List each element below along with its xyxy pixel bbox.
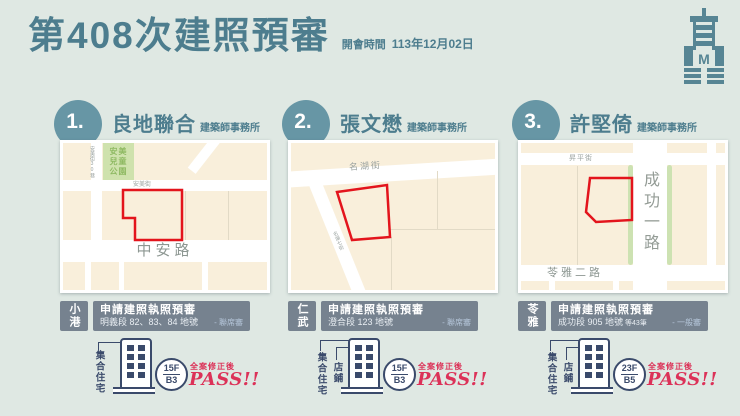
red-parcel-outline xyxy=(291,143,495,290)
district-badge: 苓雅 xyxy=(518,301,546,331)
building-window xyxy=(127,363,134,369)
building-window xyxy=(138,345,145,351)
application-bar: 申請建照執照預審 成功段 905 地號等43筆 - 一般審 xyxy=(551,301,708,331)
district-label: 小港 xyxy=(66,303,82,329)
red-parcel-outline xyxy=(521,143,725,290)
lot-number: 明義段 82、83、84 地號 xyxy=(100,318,200,328)
site-map-lingya: 昇平街 成功一路 苓雅二路 xyxy=(518,140,728,293)
application-title: 申請建照執照預審 xyxy=(328,304,471,317)
red-parcel-outline xyxy=(63,143,267,290)
building-window xyxy=(585,345,592,351)
floors-below: B3 xyxy=(166,376,178,385)
floors-above: 23F xyxy=(622,364,638,373)
application-sub: 澄合段 123 地號 - 聯席審 xyxy=(328,318,471,328)
firm-suffix: 建築師事務所 xyxy=(407,119,467,134)
pass-result: PASS!! xyxy=(417,369,488,390)
use-label: 店鋪 xyxy=(562,362,572,384)
case-panel-3: 3. 許堅倚 建築師事務所 昇平街 成功一路 苓雅二路 苓雅 申請建照 xyxy=(518,100,730,416)
floors-badge: 23F B5 xyxy=(613,358,646,391)
floors-above: 15F xyxy=(164,364,180,373)
building-window xyxy=(366,372,373,378)
building-window xyxy=(127,372,134,378)
building-window xyxy=(127,354,134,360)
meeting-date: 113年12月02日 xyxy=(392,35,474,52)
building-window xyxy=(585,363,592,369)
firm-suffix: 建築師事務所 xyxy=(637,119,697,134)
building-window xyxy=(585,354,592,360)
pass-result: PASS!! xyxy=(189,369,260,390)
lot-number: 成功段 905 地號等43筆 xyxy=(558,318,647,328)
district-badge: 仁武 xyxy=(288,301,316,331)
floors-badge: 15F B3 xyxy=(383,358,416,391)
district-label: 苓雅 xyxy=(524,303,540,329)
page-title: 第408次建照預審 xyxy=(28,14,330,58)
building-window xyxy=(355,345,362,351)
use-label: 集合住宅 xyxy=(546,352,556,396)
building-window xyxy=(596,345,603,351)
use-label: 店鋪 xyxy=(332,362,342,384)
building-window xyxy=(355,363,362,369)
review-type-tag: - 聯席審 xyxy=(214,319,243,328)
building-window xyxy=(355,372,362,378)
building-window xyxy=(355,354,362,360)
lot-number: 澄合段 123 地號 xyxy=(328,318,395,328)
application-bar: 申請建照執照預審 澄合段 123 地號 - 聯席審 xyxy=(321,301,478,331)
site-map-xiaogang: 安美 兒童 公園 安美街30巷 安美街 中安路 xyxy=(60,140,270,293)
building-base xyxy=(341,387,383,394)
site-map-renwu: 名湖街 名湖七街 xyxy=(288,140,498,293)
building-window xyxy=(596,372,603,378)
building-window xyxy=(138,363,145,369)
meeting-time-label: 開會時間 xyxy=(342,36,386,52)
use-label: 集合住宅 xyxy=(316,352,326,396)
building-window xyxy=(127,345,134,351)
application-title: 申請建照執照預審 xyxy=(100,304,243,317)
slide-canvas: 第408次建照預審 開會時間 113年12月02日 M 1. xyxy=(0,0,740,416)
meeting-info: 開會時間 113年12月02日 xyxy=(342,35,474,52)
application-bar: 申請建照執照預審 明義段 82、83、84 地號 - 聯席審 xyxy=(93,301,250,331)
building-window xyxy=(138,354,145,360)
floors-badge: 15F B3 xyxy=(155,358,188,391)
svg-text:M: M xyxy=(698,51,710,67)
floors-below: B5 xyxy=(624,376,636,385)
district-label: 仁武 xyxy=(294,303,310,329)
district-badge: 小港 xyxy=(60,301,88,331)
bracket-line xyxy=(98,342,121,350)
floors-above: 15F xyxy=(392,364,408,373)
pass-result: PASS!! xyxy=(647,369,718,390)
architect-firm: 張文懋 建築師事務所 xyxy=(340,108,467,137)
floors-below: B3 xyxy=(394,376,406,385)
review-type-tag: - 聯席審 xyxy=(442,319,471,328)
architect-firm: 許堅倚 建築師事務所 xyxy=(570,108,697,137)
application-sub: 明義段 82、83、84 地號 - 聯席審 xyxy=(100,318,243,328)
building-window xyxy=(366,345,373,351)
application-sub: 成功段 905 地號等43筆 - 一般審 xyxy=(558,318,701,328)
building-window xyxy=(585,372,592,378)
application-title: 申請建照執照預審 xyxy=(558,304,701,317)
use-label: 集合住宅 xyxy=(94,350,104,394)
architect-firm: 良地聯合 建築師事務所 xyxy=(112,108,260,137)
building-window xyxy=(596,354,603,360)
building-icon xyxy=(348,338,380,394)
building-icon xyxy=(578,338,610,394)
review-type-tag: - 一般審 xyxy=(672,319,701,328)
building-window xyxy=(366,354,373,360)
building-window xyxy=(366,363,373,369)
case-panel-2: 2. 張文懋 建築師事務所 名湖街 名湖七街 仁武 申請建照執照預審 澄合段 1… xyxy=(288,100,500,416)
firm-name: 許堅倚 xyxy=(570,108,633,137)
building-icon xyxy=(120,338,152,394)
firm-name: 良地聯合 xyxy=(112,108,196,137)
building-base xyxy=(571,387,613,394)
firm-name: 張文懋 xyxy=(340,108,403,137)
firm-suffix: 建築師事務所 xyxy=(200,119,260,134)
header: 第408次建照預審 開會時間 113年12月02日 xyxy=(28,14,474,58)
building-base xyxy=(113,387,155,394)
building-bureau-logo-icon: M xyxy=(682,8,726,92)
building-window xyxy=(138,372,145,378)
building-window xyxy=(596,363,603,369)
case-panel-1: 1. 良地聯合 建築師事務所 安美 兒童 公園 安美街30巷 安美街 中安路 xyxy=(60,100,272,416)
